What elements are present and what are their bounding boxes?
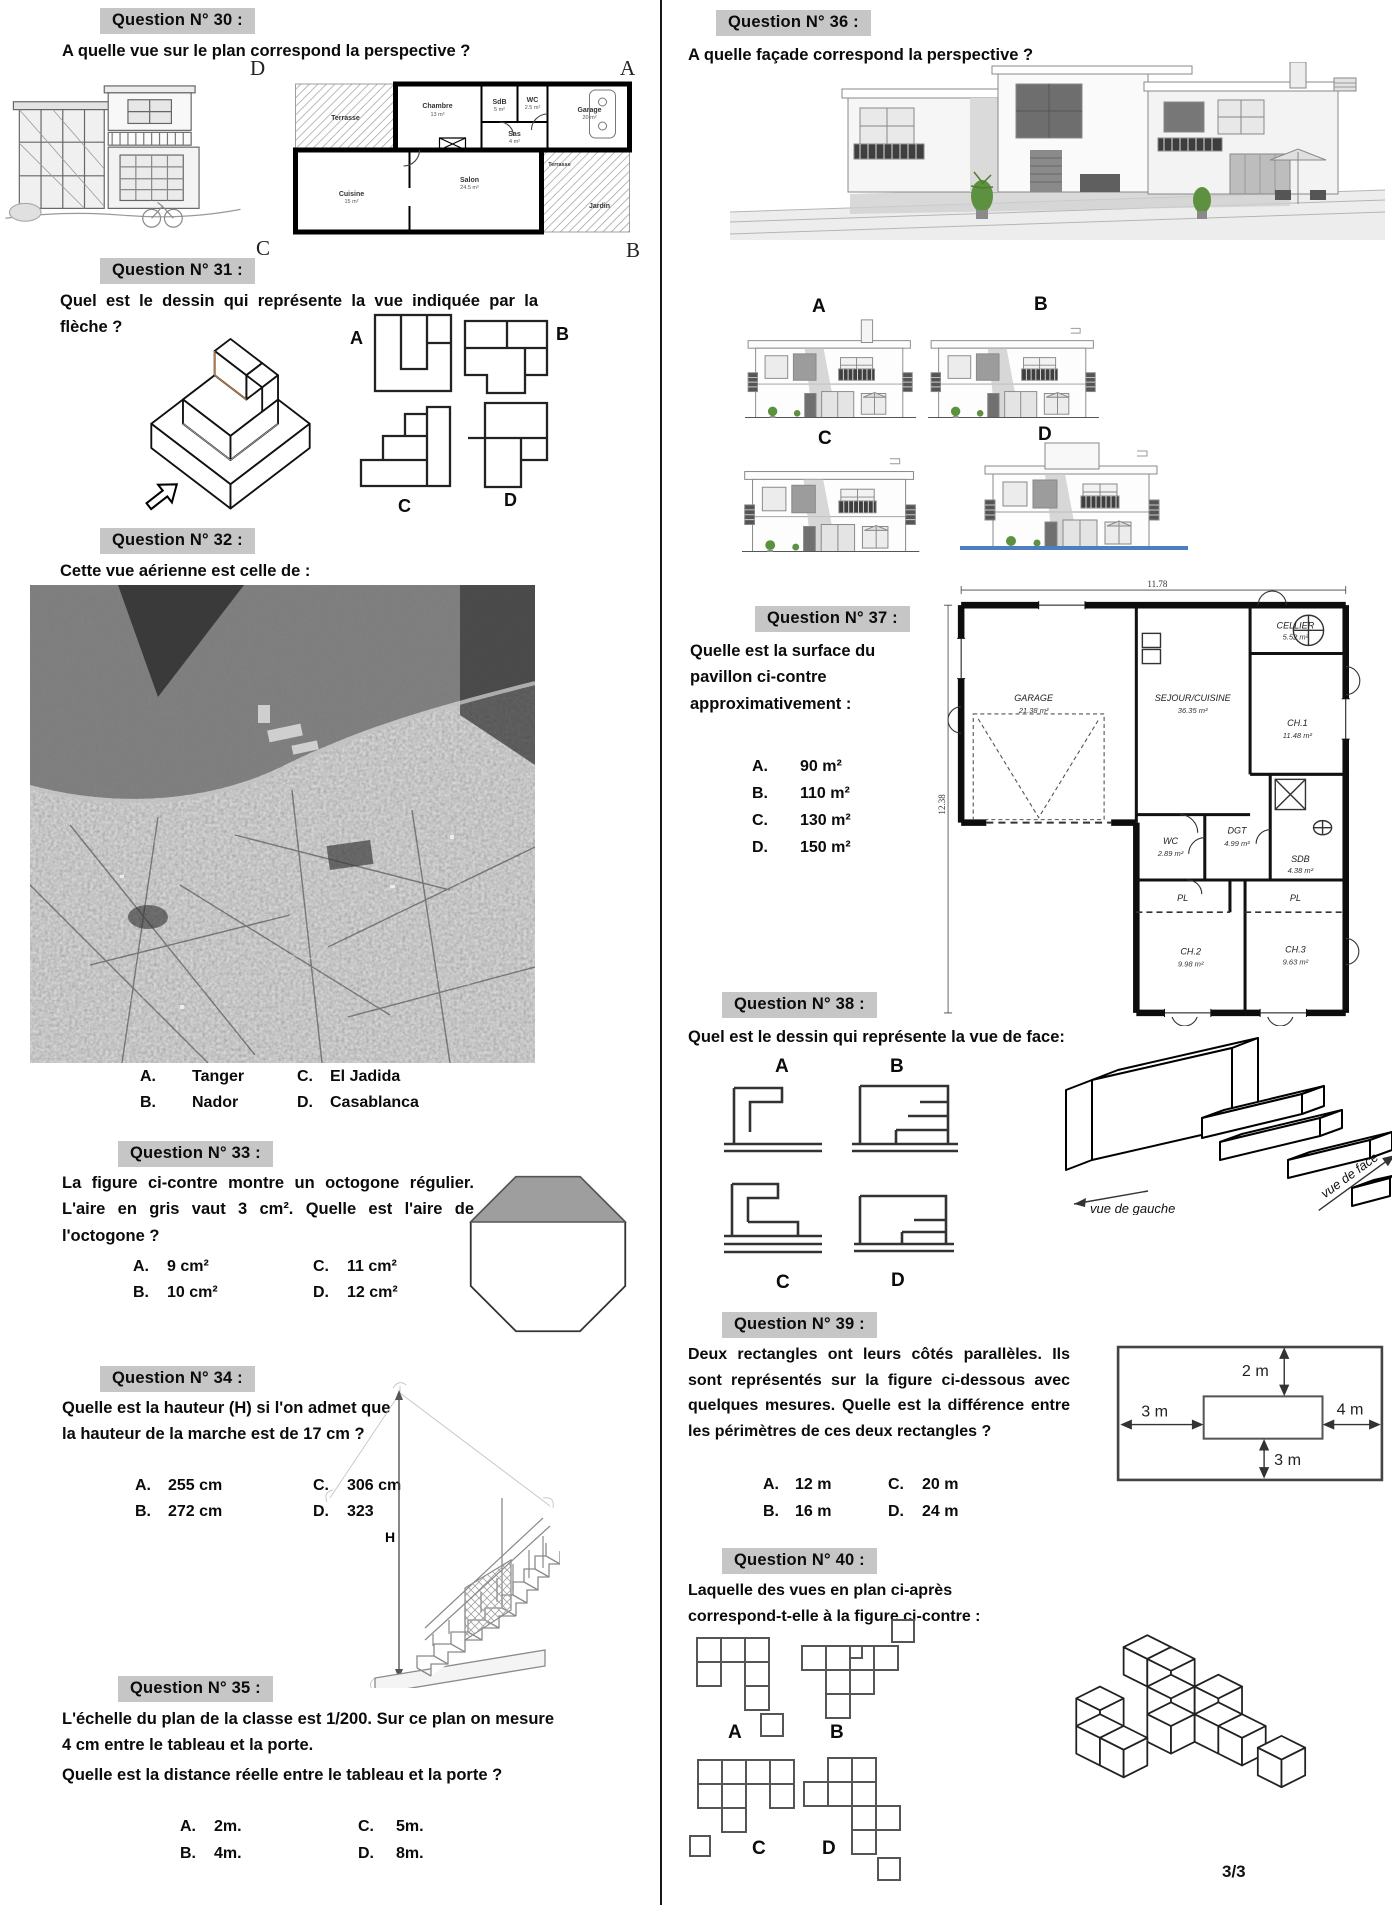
q37-room-dgt: DGT [1227, 826, 1248, 836]
q37-option-c-letter: C. [752, 812, 768, 830]
q33-question: La figure ci-contre montre un octogone r… [62, 1170, 474, 1249]
q37-room-cellier: CELLIER [1277, 620, 1315, 630]
q32-option-b-value: Nador [192, 1094, 238, 1112]
q37-area-ch1: 11.48 m² [1283, 731, 1313, 740]
q33-option-c-letter: C. [313, 1258, 329, 1276]
q33-option-a-value: 9 cm² [167, 1258, 209, 1276]
q30-room-cuisine: Cuisine [339, 191, 364, 198]
q32-option-a-letter: A. [140, 1068, 156, 1086]
page-number: 3/3 [1222, 1862, 1246, 1882]
q37-pavilion-plan-figure: 11.78 12.38 GARAGE SEJOUR/CUISINE CELLIE… [938, 578, 1386, 1026]
q37-room-sdb: SDB [1291, 854, 1310, 864]
q39-dim-bottom: 3 m [1274, 1451, 1301, 1469]
q40-header: Question N° 40 : [722, 1548, 877, 1574]
q32-question: Cette vue aérienne est celle de : [60, 558, 540, 584]
q39-dim-top: 2 m [1242, 1362, 1269, 1380]
q37-room-wc: WC [1163, 836, 1179, 846]
q32-option-d-letter: D. [297, 1094, 313, 1112]
q35-text-1: L'échelle du plan de la classe est 1/200… [62, 1706, 554, 1759]
q37-area-ch3: 9.63 m² [1283, 958, 1309, 967]
q39-dim-left: 3 m [1141, 1403, 1168, 1421]
q40-choice-b: B [830, 1722, 844, 1744]
q30-area-chambre: 13 m² [430, 112, 444, 118]
q34-option-a-letter: A. [135, 1477, 151, 1495]
q31-choice-b: B [556, 324, 569, 345]
q33-option-a-letter: A. [133, 1258, 149, 1276]
q40-plan-d-figure [798, 1756, 906, 1884]
q34-option-b-letter: B. [135, 1503, 151, 1521]
q37-area-ch2: 9.98 m² [1178, 960, 1204, 969]
q36-facade-a-figure [745, 318, 921, 418]
q38-view-left-label: vue de gauche [1090, 1201, 1175, 1215]
q38-answer-b-figure [848, 1080, 966, 1166]
q39-option-c-value: 20 m [922, 1476, 958, 1494]
q30-corner-c: C [256, 236, 270, 261]
q30-room-terrasse1: Terrasse [331, 115, 360, 122]
q33-option-c-value: 11 cm² [347, 1258, 397, 1276]
q30-room-sdb: SdB [493, 99, 507, 106]
q35-option-d-letter: D. [358, 1845, 374, 1863]
q39-rectangles-figure: 2 m 3 m 4 m 3 m [1113, 1342, 1387, 1488]
q34-h-label: H [385, 1529, 395, 1545]
q37-option-b-value: 110 m² [800, 785, 850, 803]
exam-page: Question N° 30 : A quelle vue sur le pla… [0, 0, 1400, 1917]
q31-view-arrow-icon [142, 476, 184, 515]
q37-room-ch1: CH.1 [1287, 718, 1308, 728]
q37-area-wc: 2.89 m² [1157, 849, 1184, 858]
q30-area-salon: 24.5 m² [460, 185, 479, 191]
q35-option-b-letter: B. [180, 1845, 196, 1863]
q39-option-b-letter: B. [763, 1503, 779, 1521]
q36-choice-b: B [1034, 294, 1048, 316]
q34-staircase-figure: H [315, 1378, 560, 1688]
q37-room-pl1: PL [1177, 893, 1188, 903]
q39-question: Deux rectangles ont leurs côtés parallèl… [688, 1342, 1070, 1444]
q40-plan-a-figure [695, 1636, 797, 1744]
q40-choice-c: C [752, 1838, 766, 1860]
q37-area-sejour: 36.35 m² [1178, 706, 1208, 715]
q30-room-salon: Salon [460, 177, 479, 184]
q38-isometric-figure: vue de gauche vue de face [1052, 1010, 1392, 1215]
q31-choice-d: D [504, 490, 517, 511]
q40-plan-c-figure [688, 1758, 800, 1860]
q37-option-d-value: 150 m² [800, 839, 851, 857]
q32-option-c-letter: C. [297, 1068, 313, 1086]
q30-room-sas: Sas [508, 131, 521, 138]
q30-room-wc: WC [527, 97, 539, 104]
q37-option-c-value: 130 m² [800, 812, 851, 830]
q36-facade-b-figure [928, 318, 1104, 418]
q40-choice-a: A [728, 1722, 742, 1744]
q33-gray-area [471, 1177, 626, 1222]
q37-option-a-letter: A. [752, 758, 768, 776]
q37-room-ch2: CH.2 [1180, 947, 1201, 957]
q33-octagon-figure [462, 1156, 634, 1352]
q37-header: Question N° 37 : [755, 606, 910, 632]
q38-choice-d: D [891, 1270, 905, 1292]
q33-option-b-value: 10 cm² [167, 1284, 218, 1302]
q34-option-a-value: 255 cm [168, 1477, 222, 1495]
q39-option-a-value: 12 m [795, 1476, 831, 1494]
q30-corner-d: D [250, 56, 265, 81]
q38-choice-c: C [776, 1272, 790, 1294]
q39-option-d-value: 24 m [922, 1503, 958, 1521]
q36-facade-d-figure [962, 442, 1188, 548]
q31-answer-c-figure [358, 404, 453, 489]
q38-choice-a: A [775, 1056, 789, 1078]
q36-choice-a: A [812, 296, 826, 318]
q35-option-a-letter: A. [180, 1818, 196, 1836]
q37-dim-left: 12.38 [938, 794, 947, 815]
q31-choice-a: A [350, 328, 363, 349]
q36-perspective-figure [730, 62, 1385, 242]
q30-room-terrasse2: Terrasse [548, 162, 571, 168]
column-divider [660, 0, 662, 1905]
q39-dim-right: 4 m [1337, 1400, 1364, 1418]
q38-header: Question N° 38 : [722, 992, 877, 1018]
q37-question: Quelle est la surface du pavillon ci-con… [690, 638, 930, 717]
q38-answer-a-figure [718, 1080, 830, 1166]
q35-text-2: Quelle est la distance réelle entre le t… [62, 1762, 582, 1788]
q35-option-b-value: 4m. [214, 1845, 242, 1863]
q30-house-perspective-figure [5, 80, 243, 238]
q37-room-pl2: PL [1290, 893, 1301, 903]
q33-option-d-value: 12 cm² [347, 1284, 398, 1302]
q32-aerial-photo [30, 585, 535, 1063]
q39-option-b-value: 16 m [795, 1503, 831, 1521]
q40-choice-d: D [822, 1838, 836, 1860]
q33-option-b-letter: B. [133, 1284, 149, 1302]
q31-answer-d-figure [465, 400, 550, 490]
q37-area-garage: 21.38 m² [1018, 706, 1049, 715]
q36-blue-line [960, 546, 1188, 550]
q31-isometric-figure [128, 322, 333, 518]
q39-option-c-letter: C. [888, 1476, 904, 1494]
q32-header: Question N° 32 : [100, 528, 255, 554]
q37-option-a-value: 90 m² [800, 758, 842, 776]
q38-choice-b: B [890, 1056, 904, 1078]
q37-option-d-letter: D. [752, 839, 768, 857]
q39-option-d-letter: D. [888, 1503, 904, 1521]
q39-header: Question N° 39 : [722, 1312, 877, 1338]
q40-plan-b-figure [800, 1618, 918, 1732]
q31-header: Question N° 31 : [100, 258, 255, 284]
q36-facade-c-figure [742, 448, 924, 552]
q35-option-c-value: 5m. [396, 1818, 424, 1836]
q35-header: Question N° 35 : [118, 1676, 273, 1702]
q30-room-chambre: Chambre [422, 103, 452, 110]
q31-answer-b-figure [462, 318, 550, 398]
q37-area-sdb: 4.38 m² [1288, 866, 1314, 875]
q30-question: A quelle vue sur le plan correspond la p… [62, 38, 542, 64]
q35-option-d-value: 8m. [396, 1845, 424, 1863]
q37-room-sejour: SEJOUR/CUISINE [1155, 693, 1232, 703]
q37-area-dgt: 4.99 m² [1224, 839, 1250, 848]
q36-header: Question N° 36 : [716, 10, 871, 36]
q38-answer-d-figure [850, 1186, 962, 1266]
q33-option-d-letter: D. [313, 1284, 329, 1302]
q37-room-garage: GARAGE [1014, 693, 1054, 703]
q32-option-c-value: El Jadida [330, 1068, 400, 1086]
q31-answer-a-figure [372, 312, 454, 398]
q38-answer-c-figure [718, 1178, 830, 1270]
q33-header: Question N° 33 : [118, 1141, 273, 1167]
q30-area-sas: 4 m² [509, 139, 520, 145]
q35-option-a-value: 2m. [214, 1818, 242, 1836]
q30-room-jardin: Jardin [589, 203, 610, 210]
q34-header: Question N° 34 : [100, 1366, 255, 1392]
q32-option-a-value: Tanger [192, 1068, 244, 1086]
q36-choice-c: C [818, 428, 832, 450]
q39-option-a-letter: A. [763, 1476, 779, 1494]
q37-room-ch3: CH.3 [1285, 945, 1306, 955]
q30-header: Question N° 30 : [100, 8, 255, 34]
q34-option-b-value: 272 cm [168, 1503, 222, 1521]
q37-option-b-letter: B. [752, 785, 768, 803]
q30-floor-plan-figure: Terrasse Chambre SdB WC Sas Garage Cuisi… [288, 78, 636, 238]
q37-dim-top: 11.78 [1147, 579, 1167, 589]
q30-area-wc: 2.5 m² [525, 105, 541, 111]
q40-cubes-figure [1010, 1578, 1330, 1800]
q37-area-cellier: 5.52 m² [1283, 632, 1309, 641]
q32-option-b-letter: B. [140, 1094, 156, 1112]
q31-choice-c: C [398, 496, 411, 517]
q30-area-sdb: 5 m² [494, 107, 505, 113]
q35-option-c-letter: C. [358, 1818, 374, 1836]
q30-corner-b: B [626, 238, 640, 263]
q32-option-d-value: Casablanca [330, 1094, 419, 1112]
q30-area-cuisine: 15 m² [344, 199, 358, 205]
